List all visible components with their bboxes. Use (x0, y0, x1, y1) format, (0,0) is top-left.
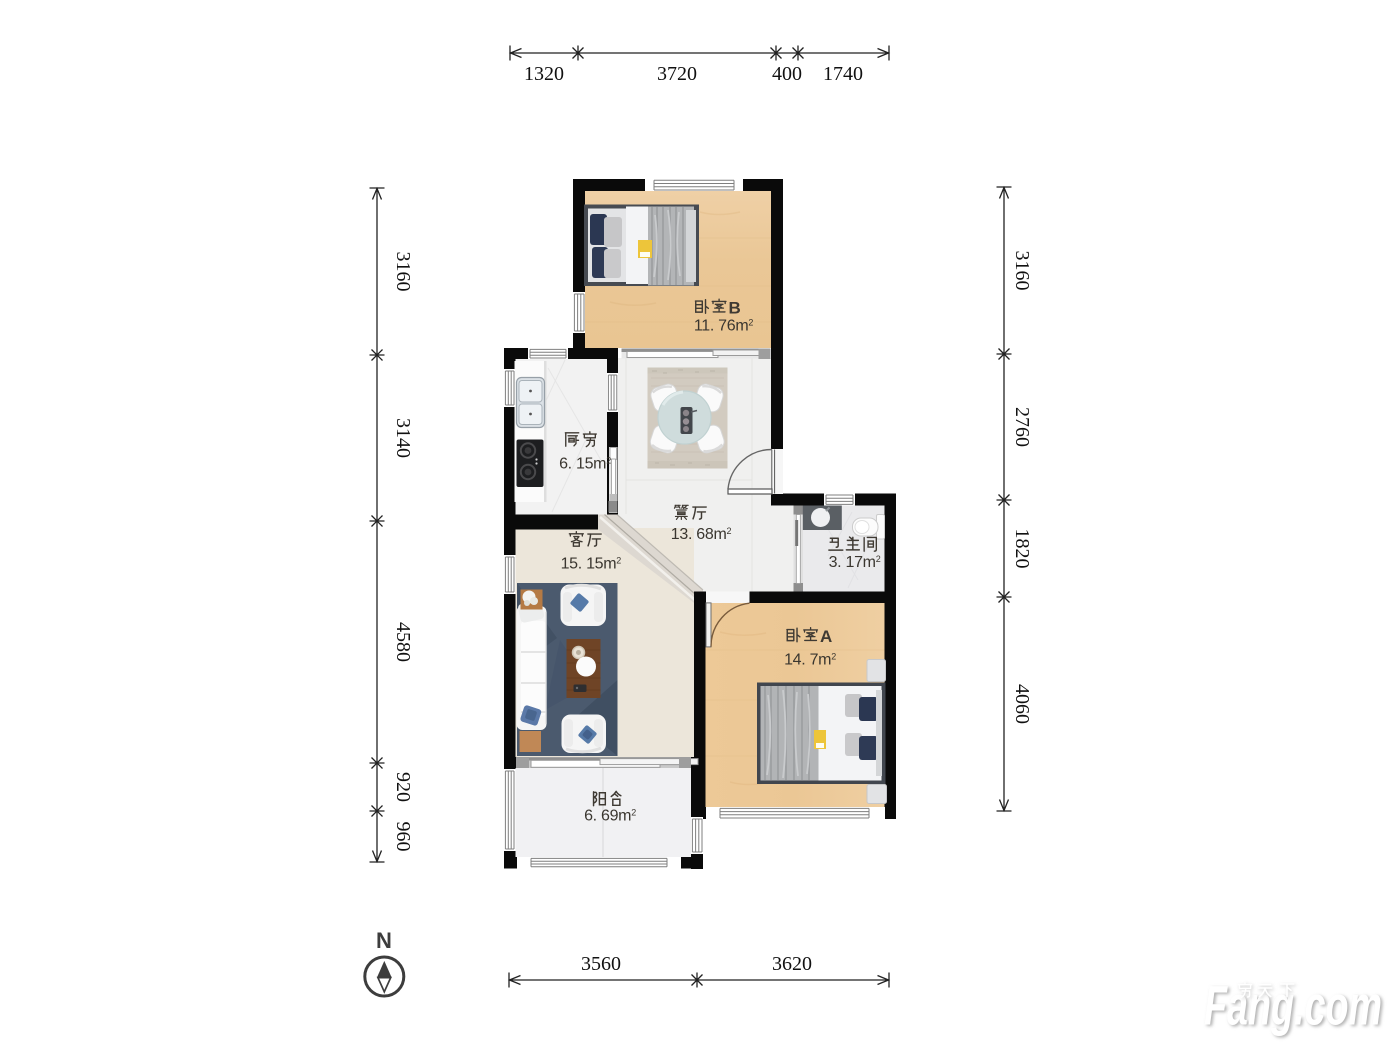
svg-text:3160: 3160 (1011, 251, 1033, 291)
svg-text:3. 17m2: 3. 17m2 (829, 554, 881, 571)
svg-text:3160: 3160 (392, 252, 414, 292)
svg-text:1740: 1740 (823, 63, 863, 85)
svg-text:1820: 1820 (1011, 529, 1033, 569)
svg-text:4580: 4580 (392, 622, 414, 662)
svg-text:B: B (729, 299, 741, 318)
svg-text:3620: 3620 (772, 953, 812, 975)
svg-text:Fang.com: Fang.com (1204, 974, 1382, 1037)
svg-text:A: A (820, 627, 832, 646)
svg-text:3720: 3720 (657, 63, 697, 85)
svg-text:11. 76m2: 11. 76m2 (694, 318, 754, 335)
svg-text:960: 960 (392, 822, 414, 852)
svg-text:3140: 3140 (392, 418, 414, 458)
svg-text:6. 15m2: 6. 15m2 (559, 456, 611, 473)
svg-text:N: N (376, 928, 392, 953)
svg-text:13. 68m2: 13. 68m2 (671, 526, 732, 543)
svg-text:3560: 3560 (581, 953, 621, 975)
svg-text:2760: 2760 (1011, 407, 1033, 447)
svg-text:14. 7m2: 14. 7m2 (784, 652, 836, 669)
svg-text:920: 920 (392, 772, 414, 802)
svg-text:6. 69m2: 6. 69m2 (584, 808, 636, 825)
svg-text:15. 15m2: 15. 15m2 (561, 556, 622, 573)
svg-text:1320: 1320 (524, 63, 564, 85)
svg-text:400: 400 (772, 63, 802, 85)
svg-text:4060: 4060 (1011, 684, 1033, 724)
